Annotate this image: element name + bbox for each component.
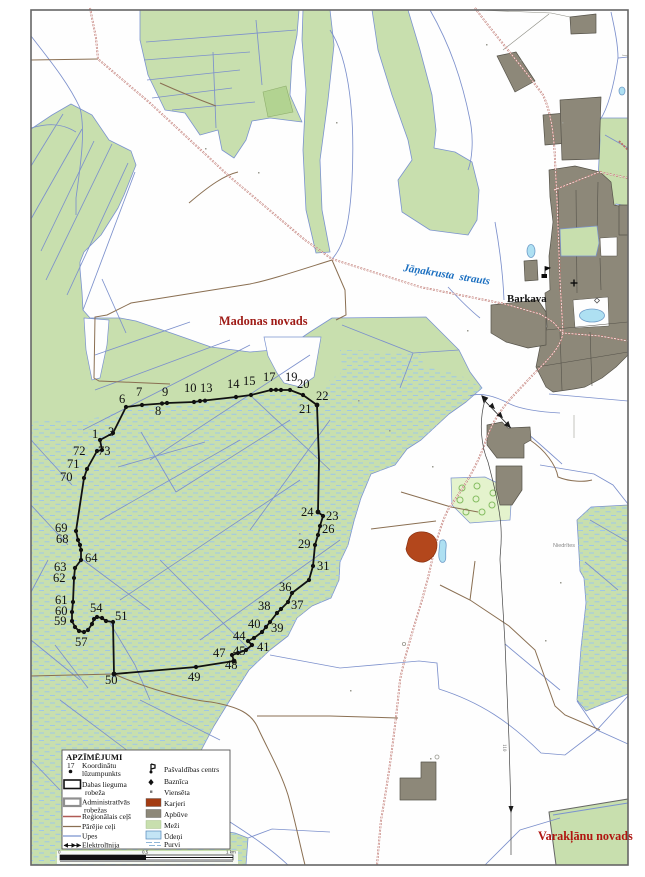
svg-text:73: 73 [98, 444, 111, 458]
svg-text:Karjeri: Karjeri [164, 799, 185, 808]
svg-text:Apbūve: Apbūve [164, 810, 188, 819]
svg-text:Varakļānu novads: Varakļānu novads [538, 829, 633, 844]
svg-text:Pašvaldības centrs: Pašvaldības centrs [164, 765, 219, 774]
svg-text:3: 3 [108, 425, 114, 439]
svg-text:71: 71 [67, 457, 80, 471]
svg-text:Elektrolīnija: Elektrolīnija [82, 841, 120, 850]
svg-text:Reģionālais ceļš: Reģionālais ceļš [82, 812, 131, 822]
svg-text:10: 10 [184, 381, 197, 395]
svg-text:23: 23 [326, 509, 339, 523]
svg-text:57: 57 [75, 635, 88, 649]
svg-text:47: 47 [213, 646, 226, 660]
svg-text:21: 21 [299, 402, 312, 416]
svg-text:64: 64 [85, 551, 98, 565]
svg-text:22: 22 [316, 389, 329, 403]
svg-text:48: 48 [225, 658, 238, 672]
svg-text:29: 29 [298, 537, 311, 551]
svg-text:13: 13 [200, 381, 213, 395]
svg-text:Niedrītes: Niedrītes [553, 543, 575, 549]
svg-text:38: 38 [258, 599, 271, 613]
svg-text:19: 19 [285, 370, 298, 384]
svg-text:Purvi: Purvi [164, 840, 180, 849]
svg-text:7: 7 [136, 385, 142, 399]
svg-text:Upes: Upes [82, 832, 97, 841]
svg-text:24: 24 [301, 505, 314, 519]
svg-text:9: 9 [162, 385, 168, 399]
svg-text:72: 72 [73, 444, 86, 458]
svg-text:Baznīca: Baznīca [164, 777, 189, 786]
svg-text:31: 31 [317, 559, 330, 573]
svg-text:40: 40 [248, 617, 261, 631]
svg-text:14: 14 [227, 377, 240, 391]
svg-text:44: 44 [233, 629, 246, 643]
svg-text:26: 26 [322, 522, 335, 536]
svg-text:Meži: Meži [164, 821, 179, 830]
svg-text:50: 50 [105, 673, 118, 687]
svg-text:1 km: 1 km [226, 850, 236, 855]
svg-text:69: 69 [55, 521, 68, 535]
svg-text:49: 49 [188, 670, 201, 684]
svg-text:8: 8 [155, 404, 161, 418]
svg-text:robeža: robeža [85, 788, 106, 797]
svg-text:110: 110 [501, 744, 506, 752]
svg-text:Viensēta: Viensēta [164, 788, 190, 797]
svg-text:17: 17 [263, 370, 276, 384]
svg-text:41: 41 [257, 640, 270, 654]
svg-text:54: 54 [90, 601, 103, 615]
svg-text:Pārējie ceļi: Pārējie ceļi [82, 822, 116, 832]
svg-text:36: 36 [279, 580, 292, 594]
svg-text:63: 63 [54, 560, 67, 574]
svg-text:61: 61 [55, 593, 68, 607]
svg-text:Madonas novads: Madonas novads [219, 314, 308, 328]
svg-text:39: 39 [271, 621, 284, 635]
svg-text:17: 17 [67, 761, 75, 770]
svg-text:45: 45 [233, 644, 246, 658]
svg-text:1: 1 [92, 427, 98, 441]
svg-text:70: 70 [60, 470, 73, 484]
svg-text:lūzumpunkts: lūzumpunkts [82, 769, 121, 778]
svg-text:6: 6 [119, 392, 125, 406]
svg-text:51: 51 [115, 609, 128, 623]
svg-text:15: 15 [243, 374, 256, 388]
svg-text:0,5: 0,5 [142, 850, 149, 855]
svg-text:20: 20 [297, 377, 310, 391]
svg-text:Barkava: Barkava [507, 293, 547, 305]
svg-text:37: 37 [291, 598, 304, 612]
